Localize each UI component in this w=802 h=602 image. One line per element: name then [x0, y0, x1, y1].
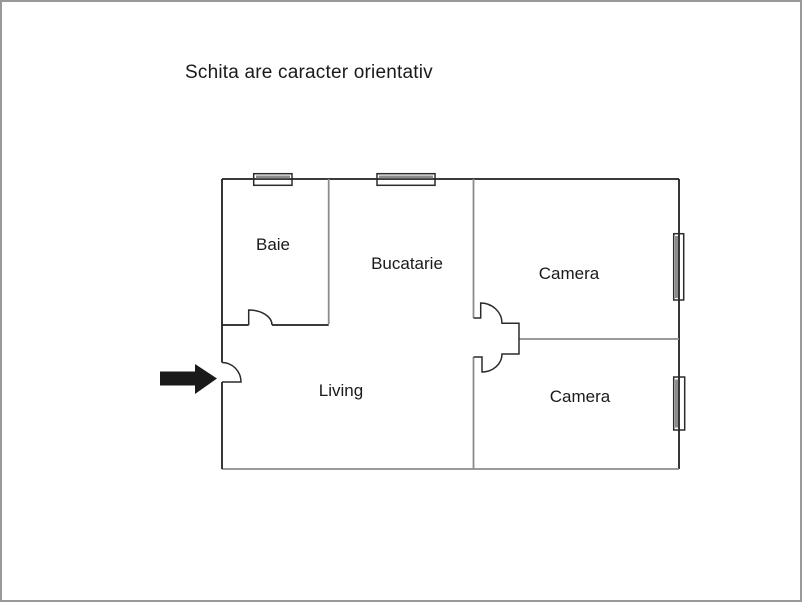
entrance-arrow-icon: [160, 364, 217, 394]
door-baie: [249, 310, 272, 325]
door-entrance: [222, 363, 241, 383]
room-label-camera-2: Camera: [550, 387, 610, 407]
outer-walls: [222, 179, 679, 469]
room-label-camera-1: Camera: [539, 264, 599, 284]
room-label-living: Living: [319, 381, 363, 401]
floorplan-drawing: [2, 2, 802, 602]
interior-walls: [222, 179, 679, 469]
door-vestibule-cameras: [474, 303, 520, 372]
doors: [222, 303, 519, 382]
room-label-baie: Baie: [256, 235, 290, 255]
room-label-bucatarie: Bucatarie: [371, 254, 443, 274]
floorplan-canvas: Schita are caracter orientativ: [0, 0, 802, 602]
